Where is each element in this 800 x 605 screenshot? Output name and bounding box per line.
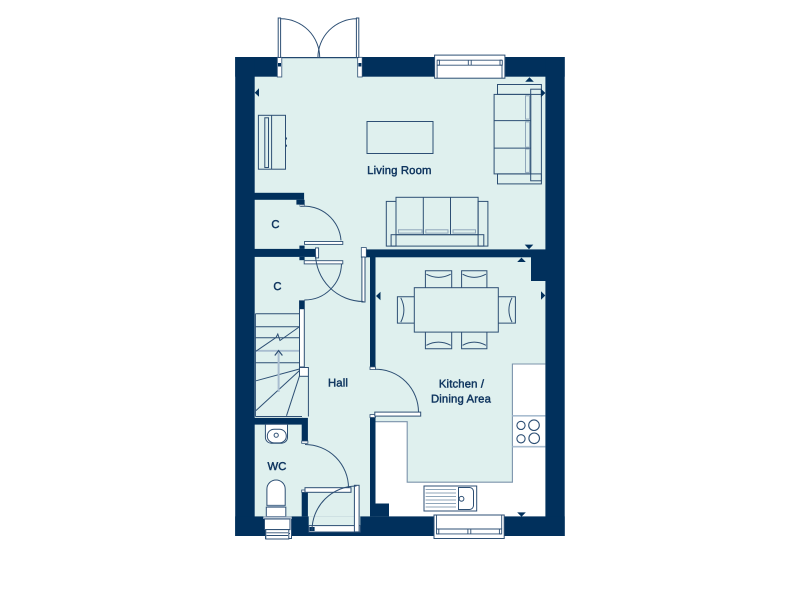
svg-text:Dining Area: Dining Area [431, 394, 492, 406]
svg-text:Kitchen /: Kitchen / [439, 379, 485, 391]
svg-text:Living Room: Living Room [367, 165, 431, 177]
svg-text:C: C [271, 219, 279, 231]
svg-text:C: C [273, 281, 281, 293]
svg-text:Hall: Hall [328, 378, 348, 390]
svg-text:WC: WC [267, 461, 286, 473]
